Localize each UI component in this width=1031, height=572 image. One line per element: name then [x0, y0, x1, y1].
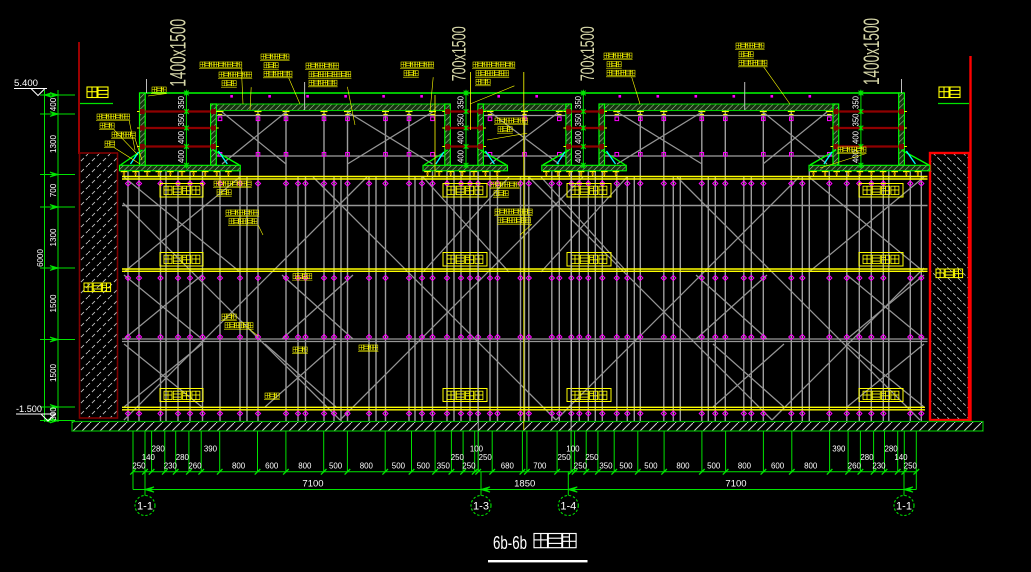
- svg-text:6000: 6000: [36, 249, 45, 267]
- svg-text:500: 500: [644, 461, 658, 470]
- svg-text:500: 500: [707, 461, 721, 470]
- svg-text:800: 800: [232, 461, 246, 470]
- svg-text:230: 230: [872, 461, 886, 470]
- svg-text:1500: 1500: [49, 363, 58, 382]
- svg-text:140: 140: [142, 453, 156, 462]
- svg-text:100: 100: [566, 444, 580, 453]
- svg-text:350: 350: [437, 461, 451, 470]
- svg-text:800: 800: [360, 461, 374, 470]
- svg-text:250: 250: [904, 461, 918, 470]
- svg-text:400: 400: [851, 130, 860, 144]
- svg-text:350: 350: [177, 95, 186, 109]
- svg-text:400: 400: [574, 130, 583, 144]
- svg-text:350: 350: [851, 95, 860, 109]
- svg-text:800: 800: [676, 461, 690, 470]
- svg-text:700x1500: 700x1500: [450, 26, 471, 81]
- svg-text:500: 500: [619, 461, 633, 470]
- svg-text:250: 250: [132, 461, 146, 470]
- svg-text:350: 350: [599, 461, 613, 470]
- svg-text:250: 250: [479, 453, 493, 462]
- svg-text:600: 600: [771, 461, 785, 470]
- svg-text:500: 500: [329, 461, 343, 470]
- svg-text:260: 260: [188, 461, 202, 470]
- svg-text:400: 400: [177, 149, 186, 163]
- svg-text:1-1: 1-1: [137, 501, 153, 513]
- svg-text:7100: 7100: [725, 479, 746, 490]
- svg-text:400: 400: [457, 149, 466, 163]
- svg-text:250: 250: [558, 453, 572, 462]
- svg-text:1400x1500: 1400x1500: [165, 19, 190, 87]
- svg-text:600: 600: [265, 461, 279, 470]
- svg-text:1-3: 1-3: [473, 501, 489, 513]
- svg-text:1300: 1300: [49, 134, 58, 153]
- svg-text:400: 400: [574, 149, 583, 163]
- svg-text:350: 350: [457, 95, 466, 109]
- svg-text:1-1: 1-1: [896, 501, 912, 513]
- svg-text:500: 500: [392, 461, 406, 470]
- svg-text:260: 260: [848, 461, 862, 470]
- svg-text:250: 250: [574, 461, 588, 470]
- svg-text:1850: 1850: [514, 479, 535, 490]
- svg-text:350: 350: [574, 113, 583, 127]
- svg-text:400: 400: [457, 130, 466, 144]
- svg-text:680: 680: [501, 461, 515, 470]
- svg-text:350: 350: [851, 113, 860, 127]
- svg-text:350: 350: [457, 113, 466, 127]
- svg-text:6b-6b: 6b-6b: [493, 533, 527, 553]
- svg-text:700: 700: [533, 461, 547, 470]
- svg-text:-1.500: -1.500: [16, 404, 42, 415]
- svg-text:400: 400: [49, 97, 58, 111]
- svg-text:250: 250: [462, 461, 476, 470]
- svg-text:700: 700: [49, 183, 58, 197]
- svg-text:280: 280: [176, 453, 190, 462]
- svg-text:800: 800: [804, 461, 818, 470]
- svg-text:1300: 1300: [49, 228, 58, 247]
- svg-text:1400x1500: 1400x1500: [859, 18, 884, 85]
- svg-text:800: 800: [738, 461, 752, 470]
- svg-text:1500: 1500: [49, 294, 58, 313]
- svg-text:5.400: 5.400: [14, 78, 38, 89]
- svg-text:390: 390: [832, 444, 846, 453]
- svg-text:230: 230: [164, 461, 178, 470]
- svg-text:390: 390: [204, 444, 218, 453]
- svg-text:800: 800: [298, 461, 312, 470]
- svg-text:500: 500: [417, 461, 431, 470]
- svg-text:250: 250: [585, 453, 599, 462]
- svg-text:350: 350: [177, 113, 186, 127]
- svg-text:280: 280: [152, 444, 166, 453]
- svg-text:1-4: 1-4: [560, 501, 576, 513]
- svg-text:400: 400: [177, 130, 186, 144]
- svg-text:350: 350: [574, 95, 583, 109]
- svg-text:700x1500: 700x1500: [578, 26, 599, 81]
- svg-text:400: 400: [851, 149, 860, 163]
- svg-text:7100: 7100: [302, 479, 323, 490]
